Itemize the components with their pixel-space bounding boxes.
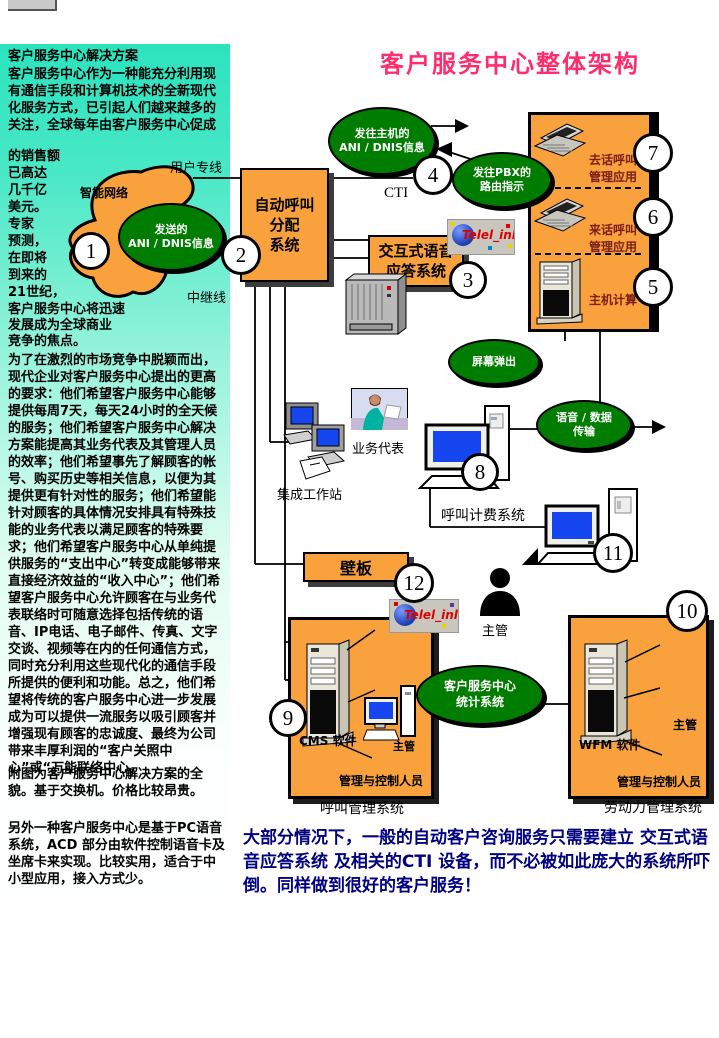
footer-note: 大部分情况下，一般的自动客户咨询服务只需要建立 交互式语音应答系统 及相关的CT… <box>243 826 717 898</box>
step-circle-4: 4 <box>413 155 453 195</box>
wallboard-box: 壁板 <box>303 552 409 582</box>
intelligent-network-label: 智能网络 <box>80 184 128 201</box>
cms-mgmt-label: 管理与控制人员 <box>339 772 423 789</box>
ellipse-stats-system: 客户服务中心 统计系统 <box>416 665 544 725</box>
step-circle-9: 9 <box>269 699 307 737</box>
ellipse-screen-pop: 屏幕弹出 <box>448 339 540 385</box>
vendor-logo: Telel_inln <box>389 599 459 633</box>
ellipse-route-to-pbx: 发往PBX的 路由指示 <box>452 152 552 208</box>
logo-pixel <box>450 222 454 226</box>
step-circle-12: 12 <box>394 563 434 603</box>
logo-text: Telel_inln <box>404 608 459 622</box>
workforce-system-label: 劳动力管理系统 <box>604 797 702 817</box>
workstation-label: 集成工作站 <box>277 484 342 503</box>
logo-pixel <box>488 246 492 250</box>
inbound-call-label: 来话呼叫 管理应用 <box>589 221 637 255</box>
monitor-icon <box>544 504 600 556</box>
agent-label: 业务代表 <box>352 438 404 457</box>
billing-system-label: 呼叫计费系统 <box>441 505 525 525</box>
sidebar-paragraph-1: 客户服务中心作为一种能充分利用现有通信手段和计算机技术的全新现代化服务方式，已引… <box>8 66 224 134</box>
user-line-label: 用户专线 <box>170 157 222 176</box>
window-fragment <box>8 0 57 11</box>
step-circle-8: 8 <box>461 453 499 491</box>
wfm-software-label: WFM 软件 <box>579 736 641 753</box>
step-circle-5: 5 <box>633 267 673 307</box>
sidebar-title: 客户服务中心解决方案 <box>8 48 138 65</box>
server-tower-icon <box>579 638 635 752</box>
host-computing-label: 主机计算 <box>589 291 637 308</box>
ellipse-voice-data: 语音 / 数据 传输 <box>536 400 632 450</box>
wfm-box: 主管 WFM 软件 管理与控制人员 <box>568 615 709 799</box>
workstation-icon <box>282 395 352 487</box>
server-tower-icon <box>536 258 588 330</box>
cms-box: 主管 CMS 软件 管理与控制人员 <box>288 617 434 799</box>
step-circle-3: 3 <box>449 261 487 299</box>
pbx-switch-icon <box>340 272 410 344</box>
sidebar-paragraph-5: 附图为客户服务中心解决方案的全貌。基于交换机。价格比较昂贵。 <box>8 766 226 800</box>
logo-pixel <box>506 224 510 228</box>
laptop-icon <box>533 120 587 162</box>
sidebar-paragraph-4: 为了在激烈的市场竞争中脱颖而出，现代企业对客户服务中心提出的更高的要求：他们希望… <box>8 352 226 777</box>
step-circle-6: 6 <box>633 197 673 237</box>
wfm-supervisor-label: 主管 <box>673 716 697 733</box>
slide: 客户服务中心解决方案 客户服务中心作为一种能充分利用现有通信手段和计算机技术的全… <box>0 0 719 1038</box>
supervisor-label: 主管 <box>482 620 508 639</box>
logo-pixel <box>508 244 512 248</box>
laptop-icon <box>533 195 587 237</box>
cms-software-label: CMS 软件 <box>299 732 357 749</box>
cti-label: CTI <box>384 185 408 202</box>
outbound-call-label: 去话呼叫 管理应用 <box>589 151 637 185</box>
supervisor-silhouette-icon <box>477 566 523 620</box>
ellipse-send-ani: 发送的 ANI / DNIS信息 <box>118 203 224 271</box>
cms-supervisor-label: 主管 <box>393 738 415 754</box>
step-circle-1: 1 <box>72 232 110 270</box>
step-circle-11: 11 <box>593 533 633 573</box>
logo-pixel <box>450 603 454 607</box>
sidebar-paragraph-6: 另外一种客户服务中心是基于PC语音系统，ACD 部分由软件控制语音卡及坐席卡来实… <box>8 820 226 888</box>
wfm-mgmt-label: 管理与控制人员 <box>617 773 701 790</box>
step-circle-10: 10 <box>666 590 708 632</box>
logo-pixel <box>442 624 446 628</box>
step-circle-7: 7 <box>633 133 673 173</box>
agent-photo <box>351 388 408 434</box>
trunk-line-label: 中继线 <box>187 287 226 306</box>
logo-pixel <box>394 602 398 606</box>
step-circle-2: 2 <box>221 235 261 275</box>
vendor-logo: Telel_inln <box>447 219 515 255</box>
page-title: 客户服务中心整体架构 <box>330 44 690 79</box>
call-mgmt-system-label: 呼叫管理系统 <box>320 798 404 818</box>
divider-dashed <box>535 187 641 189</box>
logo-text: Telel_inln <box>462 228 515 242</box>
